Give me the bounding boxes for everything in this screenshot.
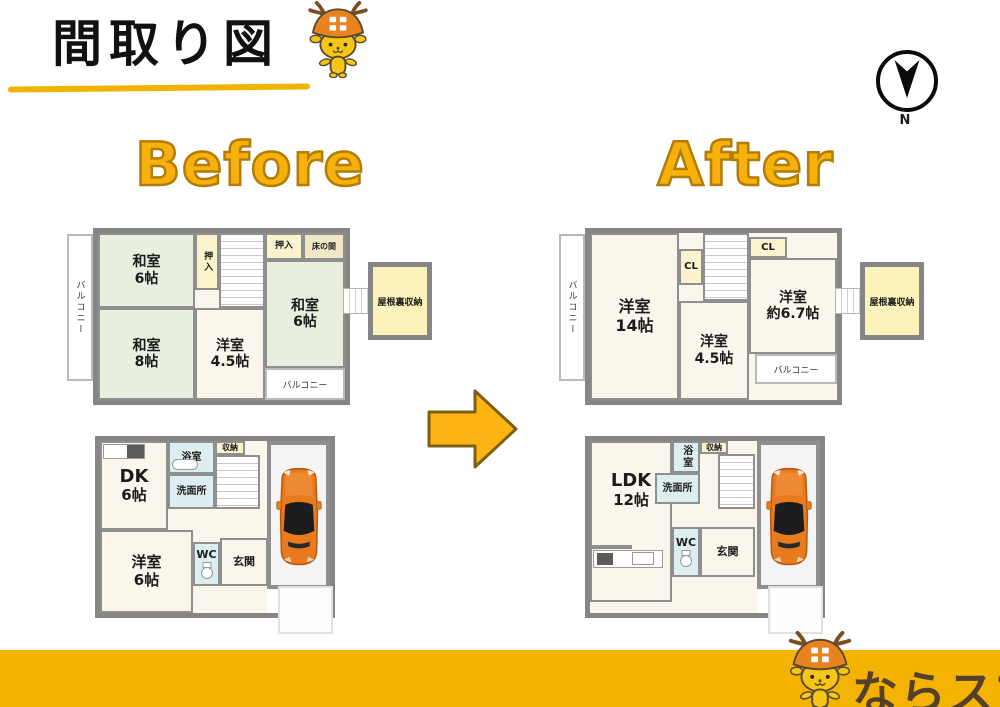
car — [276, 453, 322, 581]
driveway-outline — [278, 586, 333, 634]
north-arrow-icon — [894, 60, 920, 98]
room-washitsu-6-top: 和室 6帖 — [98, 233, 195, 308]
room-washroom: 洗面所 — [655, 473, 700, 504]
page-title: 間取り図 — [52, 4, 280, 76]
room-wc: WC — [193, 542, 220, 586]
room-bathroom: 浴室 — [672, 441, 700, 473]
plan-after-2f: バルコニー 洋室 14帖 CL CL 洋室 約6.7帖 洋室 4.5帖 バルコニ… — [557, 228, 842, 405]
before-heading: Before — [120, 130, 380, 200]
attic-storage-after: 屋根裏収納 — [860, 262, 924, 340]
balcony-left: バルコニー — [67, 234, 93, 381]
driveway-outline — [768, 586, 823, 634]
closet-oshiire-top: 押入 — [265, 233, 303, 260]
compass-circle-icon — [876, 50, 938, 112]
stairs-1f — [215, 455, 260, 509]
attic-ladder — [835, 288, 862, 314]
bathtub-icon — [172, 459, 198, 470]
room-washitsu-6-right: 和室 6帖 — [265, 260, 345, 368]
closet-cl-left: CL — [679, 249, 703, 285]
balcony-bottom-right: バルコニー — [755, 354, 837, 384]
compass-n-label: N — [876, 113, 934, 128]
room-yoshitsu-6: 洋室 6帖 — [100, 530, 193, 613]
after-2f-walls: 洋室 14帖 CL CL 洋室 約6.7帖 洋室 4.5帖 バルコニー — [585, 228, 842, 405]
balcony-left: バルコニー — [559, 234, 585, 381]
toilet-icon — [679, 550, 693, 567]
brand-logo-text: ならスマ — [852, 657, 1000, 707]
stove-icon — [127, 445, 144, 458]
room-yoshitsu-4-5: 洋室 4.5帖 — [679, 301, 749, 400]
deer-mascot-icon — [302, 0, 374, 78]
closet-oshiire-left: 押入 — [195, 233, 219, 290]
attic-storage-before: 屋根裏収納 — [368, 262, 432, 340]
after-heading: After — [618, 130, 873, 200]
room-washroom: 洗面所 — [168, 474, 215, 509]
before-2f-walls: 和室 6帖 和室 8帖 押入 洋室 4.5帖 押入 床の間 和室 — [93, 228, 350, 405]
stairs-1f — [718, 454, 755, 509]
kitchen-wall-stub — [590, 545, 632, 549]
room-washitsu-8: 和室 8帖 — [98, 308, 195, 400]
room-yoshitsu-4-5: 洋室 4.5帖 — [195, 308, 265, 400]
stove-icon — [597, 553, 613, 565]
toilet-icon — [200, 562, 214, 579]
car — [766, 453, 812, 581]
garage — [267, 441, 330, 589]
room-yoshitsu-14: 洋室 14帖 — [590, 233, 679, 400]
room-genkan: 玄関 — [220, 538, 268, 586]
storage-closet: 収納 — [700, 441, 728, 454]
plan-before-2f: バルコニー 和室 6帖 和室 8帖 押入 洋室 4.5帖 押入 床の間 — [65, 228, 350, 405]
attic-ladder — [343, 288, 370, 314]
floorplan-infographic: 間取り図 N Before After バルコニー 和室 6帖 和室 8帖 押入 — [0, 0, 1000, 707]
closet-cl-top: CL — [749, 237, 787, 258]
room-genkan: 玄関 — [700, 527, 755, 577]
stairs-2f — [219, 233, 265, 308]
tokonoma-alcove: 床の間 — [303, 233, 345, 260]
title-underline — [8, 83, 310, 92]
room-wc: WC — [672, 527, 700, 577]
garage — [757, 441, 820, 589]
footer-deer-mascot-icon — [782, 630, 858, 707]
storage-closet: 収納 — [215, 441, 245, 455]
stairs-2f — [703, 233, 749, 301]
sink-icon — [632, 552, 654, 565]
before-to-after-arrow-icon — [425, 383, 520, 475]
compass: N — [876, 50, 934, 128]
room-ldk: LDK 12帖 — [590, 441, 672, 602]
balcony-bottom-right: バルコニー — [265, 368, 345, 400]
room-yoshitsu-6-7: 洋室 約6.7帖 — [749, 258, 837, 354]
